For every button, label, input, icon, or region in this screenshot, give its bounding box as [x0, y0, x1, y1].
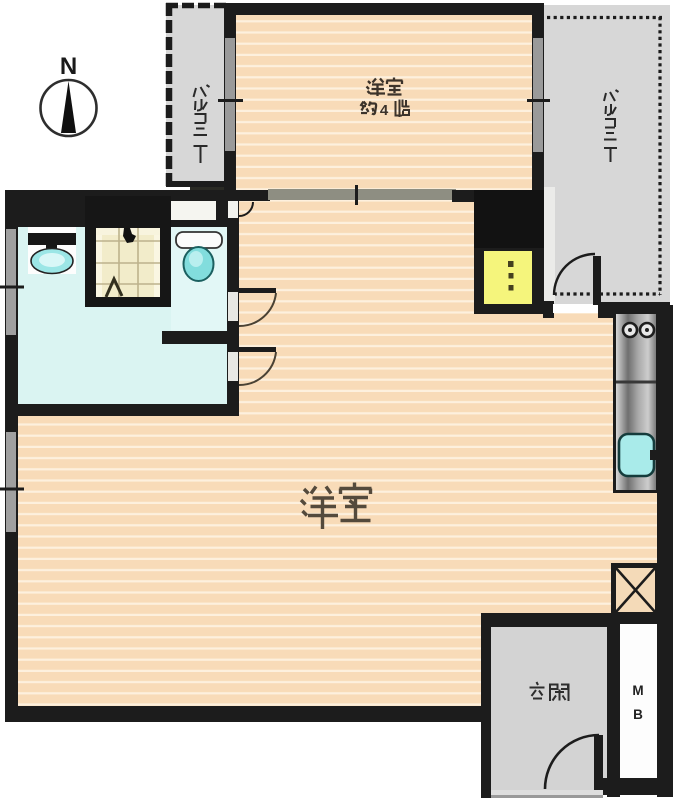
svg-text:4: 4 — [380, 102, 389, 119]
svg-text:M: M — [632, 683, 643, 698]
svg-text:B: B — [633, 707, 643, 722]
svg-text:N: N — [60, 53, 77, 80]
